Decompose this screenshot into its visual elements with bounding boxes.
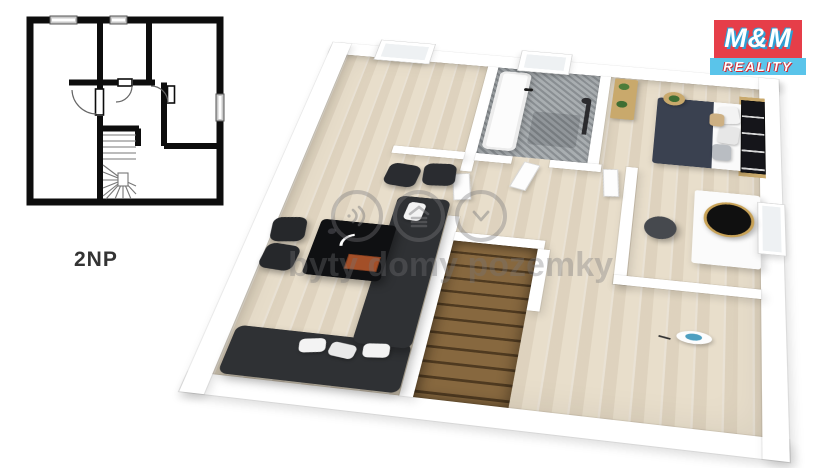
pouf bbox=[421, 163, 457, 186]
bed-duvet bbox=[652, 97, 714, 168]
window-east-wall bbox=[758, 203, 786, 256]
bedroom-door bbox=[603, 169, 619, 197]
bed-pillow bbox=[712, 144, 731, 162]
agency-logo: M&M REALITY bbox=[710, 20, 806, 75]
skylight-window-bathroom bbox=[518, 51, 572, 75]
pouf bbox=[269, 217, 308, 241]
bed-cushion bbox=[709, 113, 724, 127]
logo-reality: REALITY bbox=[710, 58, 806, 75]
floor-label: 2NP bbox=[74, 248, 118, 272]
logo-mm: M&M bbox=[714, 20, 802, 58]
render-3d-plan bbox=[179, 42, 790, 462]
sofa-pillow bbox=[298, 338, 327, 353]
book bbox=[344, 254, 382, 272]
sofa-pillow bbox=[362, 343, 391, 358]
schematic-2d-plan bbox=[20, 6, 235, 218]
picture-frames bbox=[741, 100, 766, 175]
shower-tray bbox=[527, 111, 581, 148]
floorplan-image: 2NP bbox=[0, 0, 832, 468]
bed-pillow bbox=[717, 125, 741, 146]
